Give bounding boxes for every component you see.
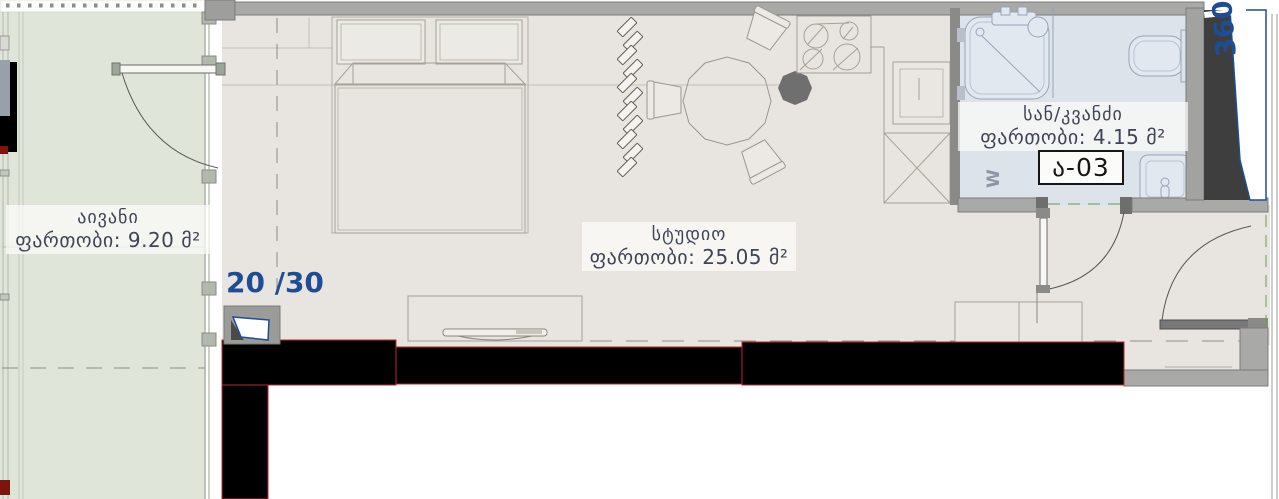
room-name: აივანი: [6, 207, 210, 228]
floor-plan: აივანი ფართობი: 9.20 მ² სტუდიო ფართობი: …: [0, 0, 1279, 499]
door-leaf: [1160, 320, 1250, 329]
balcony-floor: [0, 10, 206, 499]
washing-machine-label: W: [984, 169, 1004, 188]
demising-walls: [222, 340, 1124, 499]
apartment-code-badge: ა-03: [1038, 150, 1124, 185]
studio-label: სტუდიო ფართობი: 25.05 მ²: [582, 222, 796, 271]
bathroom-label: სან/კვანძი ფართობი: 4.15 მ²: [958, 102, 1188, 151]
exterior-wall: [205, 2, 1204, 15]
room-name: სან/კვანძი: [958, 104, 1188, 125]
column-octagon: [778, 71, 812, 105]
red-wall-mark: [0, 146, 8, 154]
pillow-right: [436, 20, 522, 64]
room-area: ფართობი: 25.05 მ²: [582, 245, 796, 269]
room-name: სტუდიო: [582, 224, 796, 245]
view-counter-label[interactable]: 20 /30: [226, 266, 324, 299]
door-leaf: [118, 65, 218, 73]
pillow-left: [337, 20, 425, 64]
pano-360-label[interactable]: 360: [1207, 0, 1243, 58]
room-area: ფართობი: 9.20 მ²: [6, 228, 210, 252]
toilet: [1129, 36, 1185, 76]
red-wall-mark-2: [0, 480, 10, 495]
door-leaf: [1040, 218, 1047, 290]
kitchen-sink: [893, 62, 950, 124]
view-marker[interactable]: [224, 306, 280, 344]
room-area: ფართობი: 4.15 მ²: [958, 125, 1188, 149]
chair-left: [647, 81, 681, 119]
balcony-label: აივანი ფართობი: 9.20 მ²: [6, 205, 210, 254]
shower-head: [1028, 17, 1048, 37]
